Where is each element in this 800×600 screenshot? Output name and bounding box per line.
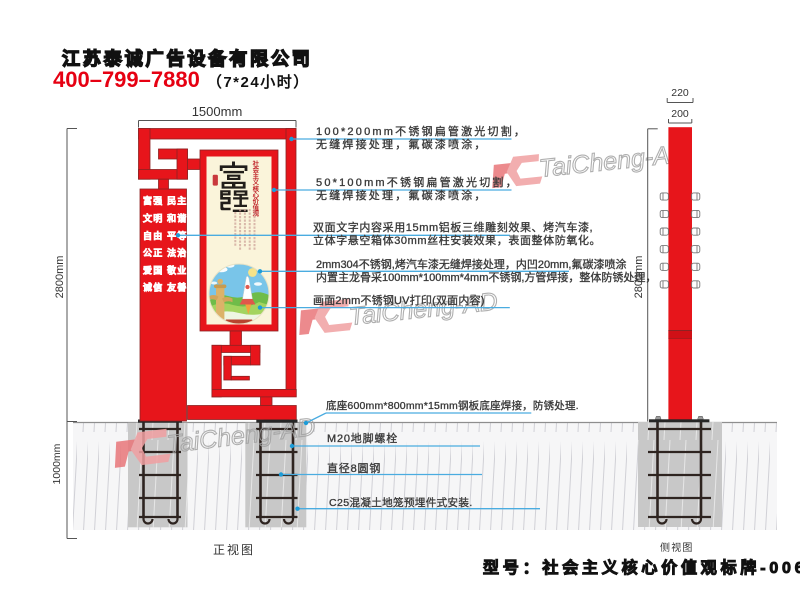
- svg-text:公正 法治: 公正 法治: [143, 247, 188, 258]
- svg-text:爱国 敬业: 爱国 敬业: [143, 264, 188, 275]
- svg-text:诚信 友善: 诚信 友善: [143, 282, 188, 293]
- svg-text:220: 220: [671, 87, 689, 99]
- svg-text:200: 200: [671, 108, 689, 120]
- svg-text:文明 和谐: 文明 和谐: [142, 213, 188, 224]
- svg-text:1000mm: 1000mm: [51, 443, 63, 484]
- svg-text:2800mm: 2800mm: [54, 256, 66, 299]
- svg-text:富强 民主: 富强 民主: [143, 195, 188, 206]
- svg-text:1500mm: 1500mm: [192, 104, 243, 119]
- svg-text:TaiCheng-AD: TaiCheng-AD: [538, 140, 689, 183]
